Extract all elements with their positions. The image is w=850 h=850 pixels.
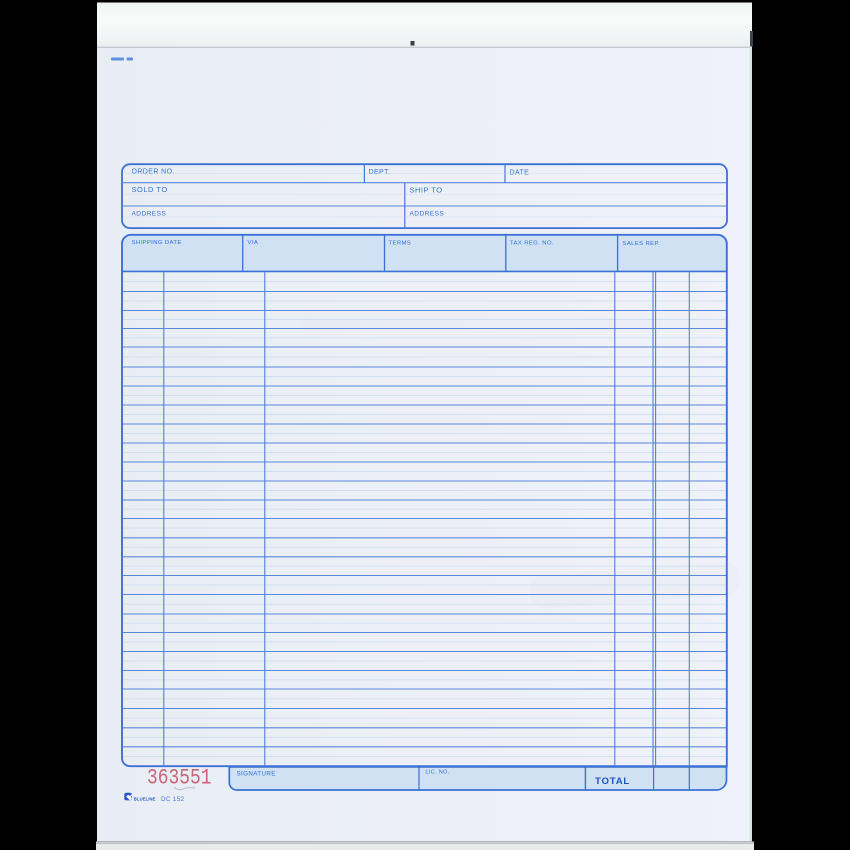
svg-text:SALES REP.: SALES REP.	[623, 241, 661, 247]
svg-text:TAX REG. NO.: TAX REG. NO.	[510, 241, 554, 247]
svg-text:ORDER NO.: ORDER NO.	[132, 169, 175, 176]
svg-text:SHIPPING DATE: SHIPPING DATE	[132, 240, 182, 246]
svg-text:DC 152: DC 152	[161, 796, 185, 803]
svg-text:TERMS: TERMS	[389, 240, 412, 246]
svg-text:BLUELINE: BLUELINE	[134, 796, 156, 801]
svg-text:ADDRESS: ADDRESS	[132, 210, 167, 217]
svg-text:VIA: VIA	[248, 240, 259, 246]
svg-text:363551: 363551	[147, 765, 212, 791]
svg-text:SIGNATURE: SIGNATURE	[237, 771, 276, 778]
svg-text:SOLD TO: SOLD TO	[132, 185, 168, 194]
svg-text:DEPT.: DEPT.	[369, 169, 391, 176]
svg-text:DATE: DATE	[510, 169, 530, 176]
svg-text:SHIP TO: SHIP TO	[410, 185, 443, 194]
svg-text:TOTAL: TOTAL	[595, 776, 630, 787]
svg-text:LIC. NO.: LIC. NO.	[426, 770, 450, 776]
